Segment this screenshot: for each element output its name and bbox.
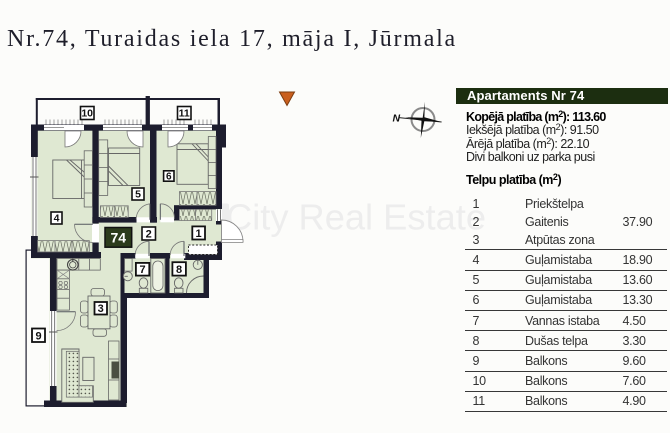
svg-text:74: 74 [111,230,127,246]
svg-text:5: 5 [135,189,141,201]
svg-text:6: 6 [166,171,172,182]
svg-text:City Real Estate: City Real Estate [226,197,486,238]
svg-text:2: 2 [146,229,152,241]
svg-text:9: 9 [35,330,41,342]
svg-text:N: N [393,113,401,125]
svg-text:1: 1 [196,228,202,240]
svg-text:3: 3 [98,303,104,315]
svg-text:7: 7 [140,264,146,276]
svg-text:11: 11 [179,108,190,120]
svg-text:10: 10 [81,108,93,120]
svg-text:8: 8 [176,264,182,276]
svg-text:4: 4 [54,213,60,225]
